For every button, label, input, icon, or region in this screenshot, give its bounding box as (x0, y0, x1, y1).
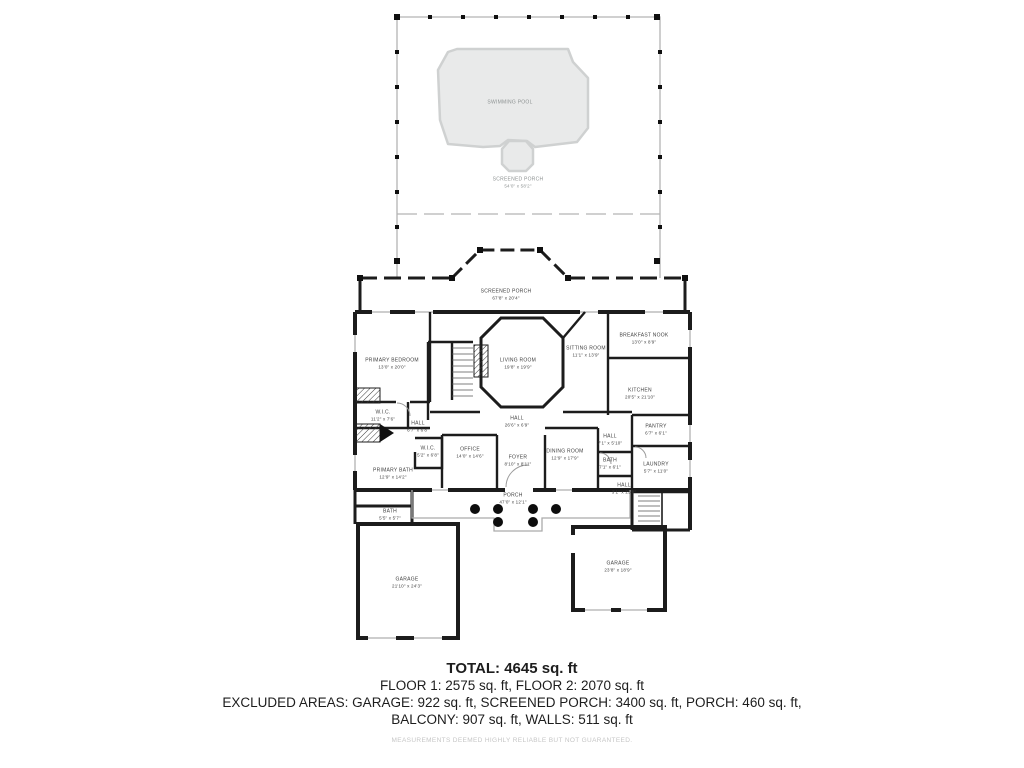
interior-walls (355, 312, 690, 527)
summary-excluded-1: EXCLUDED AREAS: GARAGE: 922 sq. ft, SCRE… (0, 694, 1024, 711)
floor-plan-page: SWIMMING POOL SCREENED PORCH 54'0" x 58'… (0, 0, 1024, 768)
garage-left-walls (358, 524, 458, 641)
garage-right-walls (570, 527, 665, 613)
living-room-walls (481, 318, 563, 407)
summary-floors: FLOOR 1: 2575 sq. ft, FLOOR 2: 2070 sq. … (0, 677, 1024, 694)
summary-total: TOTAL: 4645 sq. ft (0, 660, 1024, 677)
rear-screened-porch-walls (357, 247, 688, 312)
summary-excluded-2: BALCONY: 907 sq. ft, WALLS: 511 sq. ft (0, 711, 1024, 728)
spa-shape (502, 141, 533, 171)
floor-plan-canvas (0, 0, 1024, 768)
door-arcs (397, 403, 646, 487)
swimming-pool-shape (438, 49, 588, 171)
area-summary: TOTAL: 4645 sq. ft FLOOR 1: 2575 sq. ft,… (0, 660, 1024, 744)
house-outer-walls (355, 312, 690, 530)
summary-disclaimer: MEASUREMENTS DEEMED HIGHLY RELIABLE BUT … (0, 737, 1024, 744)
